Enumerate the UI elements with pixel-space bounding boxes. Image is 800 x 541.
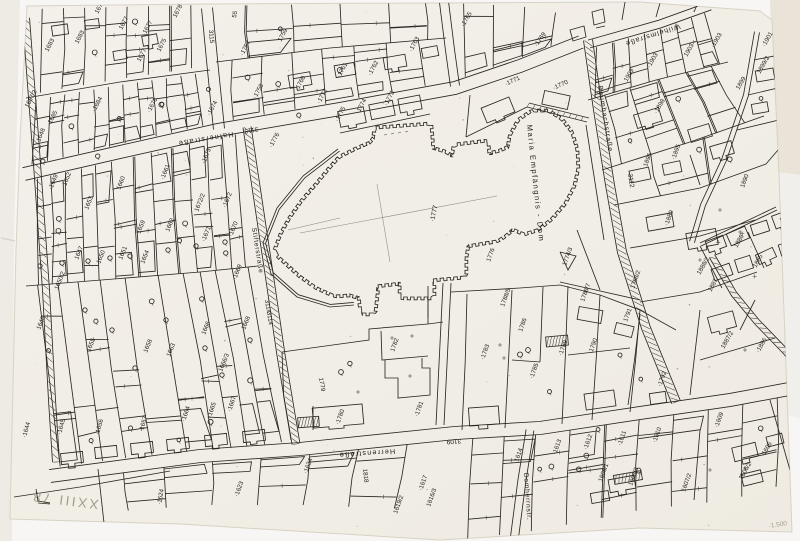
svg-text:3109: 3109 <box>446 437 461 445</box>
svg-text:3115: 3115 <box>207 30 215 44</box>
svg-text:1818: 1818 <box>361 468 369 483</box>
